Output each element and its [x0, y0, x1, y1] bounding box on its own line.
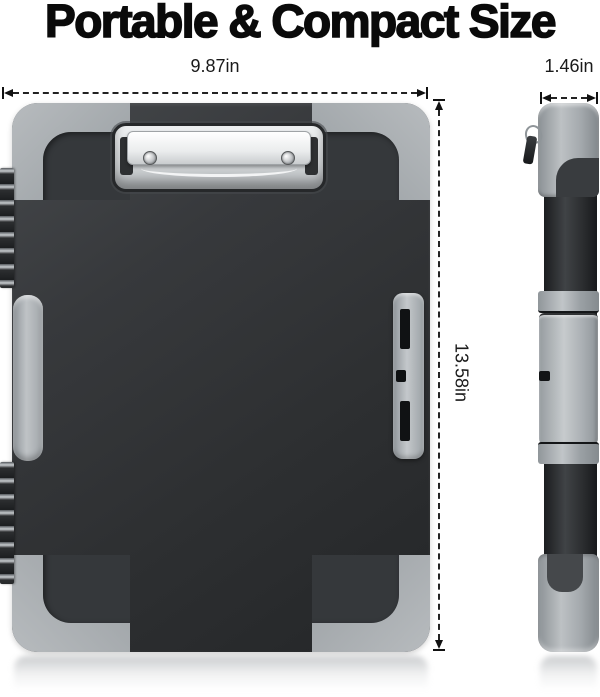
- arrow-right-icon: [417, 89, 426, 97]
- front-reflection: [14, 656, 428, 696]
- clip-rivet-left: [143, 151, 157, 165]
- corner-bumper-top-right: [312, 103, 430, 200]
- clipboard-front-view: [12, 103, 430, 652]
- height-dimension-label: 13.58in: [451, 323, 472, 423]
- latch-slot-bottom: [400, 401, 410, 441]
- clip-recess: [112, 123, 326, 192]
- arrow-right-icon: [587, 94, 596, 102]
- arrow-left-icon: [542, 94, 551, 102]
- side-bottom-inset: [547, 554, 583, 592]
- clip-lower-edge: [141, 160, 297, 177]
- product-dimension-figure: Portable & Compact Size 9.87in 1.46in 13…: [0, 0, 600, 697]
- dashed-line: [438, 110, 440, 640]
- depth-dimension-label: 1.46in: [524, 56, 600, 77]
- arrow-left-icon: [4, 89, 13, 97]
- width-dimension-label: 9.87in: [0, 56, 430, 77]
- side-clip-lever: [523, 135, 538, 164]
- hinge-top: [0, 168, 14, 288]
- arrow-up-icon: [435, 101, 443, 110]
- latch-slot-top: [400, 309, 410, 349]
- clip-rivet-right: [281, 151, 295, 165]
- side-top-inset: [556, 158, 599, 197]
- latch: [393, 293, 424, 459]
- corner-bumper-bottom-left: [12, 555, 130, 652]
- width-dimension-line: [2, 87, 428, 99]
- side-latch-block: [539, 313, 598, 444]
- height-dimension-line: [433, 99, 445, 651]
- side-rail-left: [13, 295, 43, 461]
- hinge-bottom: [0, 462, 14, 584]
- side-collar-upper: [538, 291, 599, 313]
- clipboard-side-view: [538, 103, 599, 652]
- side-top-cap: [538, 103, 599, 197]
- arrow-down-icon: [435, 640, 443, 649]
- dimension-end-tick: [426, 87, 428, 99]
- latch-tab: [396, 370, 406, 382]
- page-title: Portable & Compact Size: [0, 0, 600, 48]
- side-reflection: [540, 656, 597, 696]
- side-collar-lower: [538, 442, 599, 464]
- dashed-line: [13, 92, 417, 94]
- dashed-line: [551, 97, 587, 99]
- side-latch-slot: [539, 371, 550, 381]
- dimension-end-tick: [433, 649, 445, 651]
- side-bottom-cap: [538, 554, 599, 652]
- corner-bumper-bottom-right: [312, 555, 430, 652]
